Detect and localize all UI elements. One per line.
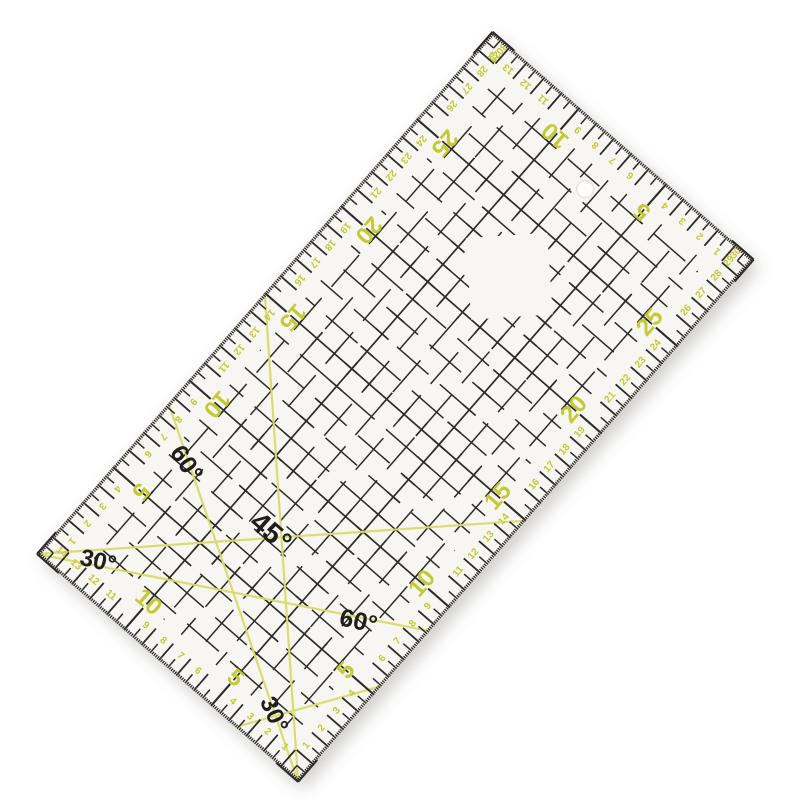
product-photo: 60°45°30°60°30°1234567891011121314151617… (0, 0, 800, 800)
ruler-photo-svg: 60°45°30°60°30°1234567891011121314151617… (0, 0, 800, 800)
